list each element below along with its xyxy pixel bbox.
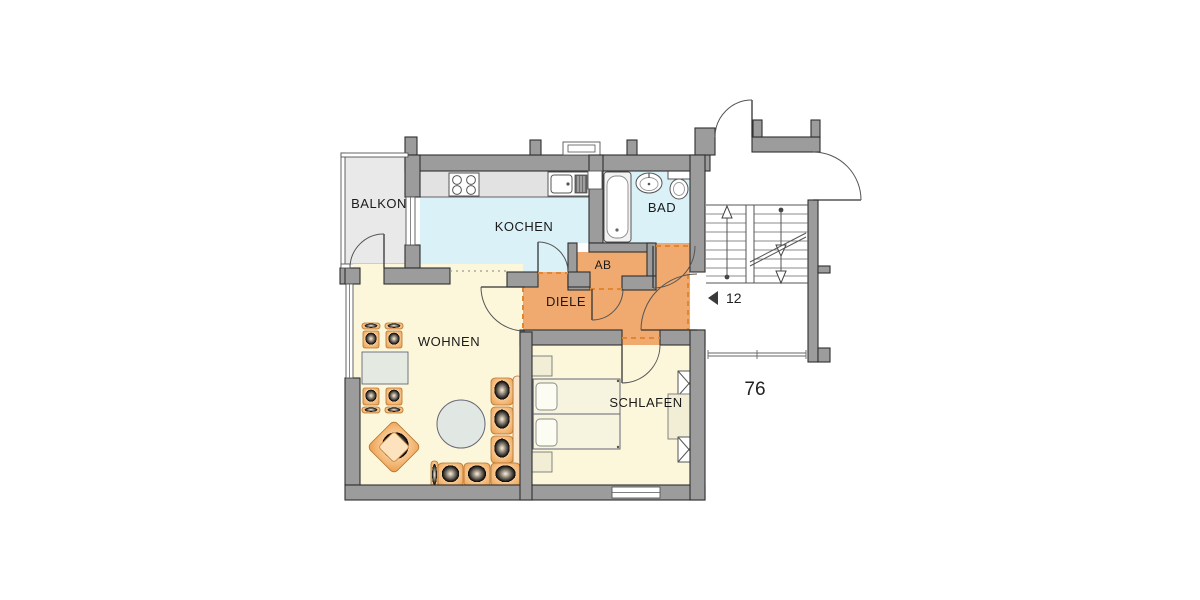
- pillow: [536, 383, 557, 410]
- vent-shaft: [588, 171, 602, 189]
- bath-label: BAD: [648, 200, 676, 215]
- sofa-cushion: [438, 463, 463, 487]
- area-number: 76: [744, 379, 765, 400]
- staircase: [706, 205, 808, 359]
- chair-back: [385, 407, 403, 413]
- kitchen-left-wall-block: [405, 245, 420, 268]
- stair-down-arrow: [776, 208, 786, 283]
- wall-stub: [811, 120, 820, 137]
- chair-back: [362, 407, 380, 413]
- floor-plan-page: BALKON KOCHEN BAD AB DIELE WOHNEN SCHLAF…: [0, 0, 1200, 600]
- stair-treads: [706, 214, 808, 276]
- neighbor-parapet: [708, 350, 806, 359]
- living-label: WOHNEN: [418, 334, 480, 349]
- balcony-railing: [341, 153, 408, 157]
- wall-stub: [530, 140, 541, 155]
- stairwell-door: [715, 100, 752, 137]
- sofa-corner-cushion: [491, 463, 520, 487]
- storage-bottom-wall: [622, 276, 656, 290]
- bath-right-wall: [690, 155, 705, 272]
- bedroom-label: SCHLAFEN: [609, 395, 682, 410]
- balcony-railing: [341, 153, 345, 268]
- burner-icon: [453, 176, 462, 185]
- floor-plan-drawing: BALKON KOCHEN BAD AB DIELE WOHNEN SCHLAF…: [0, 0, 1200, 600]
- sofa-cushion: [491, 378, 513, 405]
- basin-drain-icon: [648, 183, 651, 186]
- kitchen-left-wall: [405, 155, 420, 197]
- living-bedroom-wall: [520, 332, 532, 500]
- living-top-wall: [384, 268, 450, 284]
- hall-bedroom-wall: [520, 330, 622, 345]
- sofa-cushion: [464, 463, 490, 487]
- building-entrance-door: [813, 152, 861, 200]
- kitchen-bath-divider: [589, 155, 603, 243]
- sofa-cushion: [491, 407, 513, 434]
- toilet-bowl: [670, 179, 688, 199]
- wall-stub: [753, 120, 762, 137]
- burner-icon: [467, 176, 476, 185]
- hall-wall-block: [568, 272, 590, 287]
- chair-back: [385, 323, 403, 329]
- bed-corner-dot: [617, 446, 619, 448]
- wall-pillar: [695, 128, 715, 155]
- chair: [363, 388, 379, 405]
- kitchen-fixtures: [420, 171, 589, 197]
- bedroom-right-wall: [690, 330, 705, 500]
- wall-stub: [627, 140, 637, 155]
- chair-back: [362, 323, 380, 329]
- wall-top: [405, 155, 710, 171]
- chair: [363, 331, 379, 348]
- drain-icon: [615, 228, 618, 231]
- wall-foot: [818, 348, 830, 362]
- balcony-railing: [341, 264, 350, 268]
- wall-stub: [405, 137, 417, 155]
- left-wall: [345, 378, 360, 485]
- building-right-wall: [808, 200, 818, 362]
- storage-right-wall: [647, 243, 656, 276]
- hall-wall-block: [507, 272, 538, 287]
- burner-icon: [467, 186, 476, 195]
- round-table: [437, 400, 485, 448]
- chair: [386, 331, 402, 348]
- hall-label: DIELE: [546, 294, 586, 309]
- burner-icon: [453, 186, 462, 195]
- dining-table: [362, 352, 408, 384]
- faucet-icon: [566, 182, 569, 185]
- chimney-shaft: [563, 142, 600, 155]
- kitchen-label: KOCHEN: [495, 219, 554, 234]
- chair: [386, 388, 402, 405]
- bath-bottom-wall: [589, 243, 653, 252]
- storage-label: AB: [595, 258, 612, 272]
- entry-arrow-icon: [708, 291, 718, 305]
- left-wall-block: [345, 268, 360, 284]
- pillow: [536, 419, 557, 446]
- bed-corner-dot: [617, 380, 619, 382]
- toilet-tank: [668, 171, 690, 179]
- sofa-cushion: [491, 436, 513, 463]
- wall-stub: [818, 266, 830, 273]
- balcony-label: BALKON: [351, 196, 407, 211]
- apartment-number: 12: [726, 290, 742, 306]
- stairwell-top-wall: [752, 137, 820, 152]
- hall-nook-floor: [656, 243, 690, 272]
